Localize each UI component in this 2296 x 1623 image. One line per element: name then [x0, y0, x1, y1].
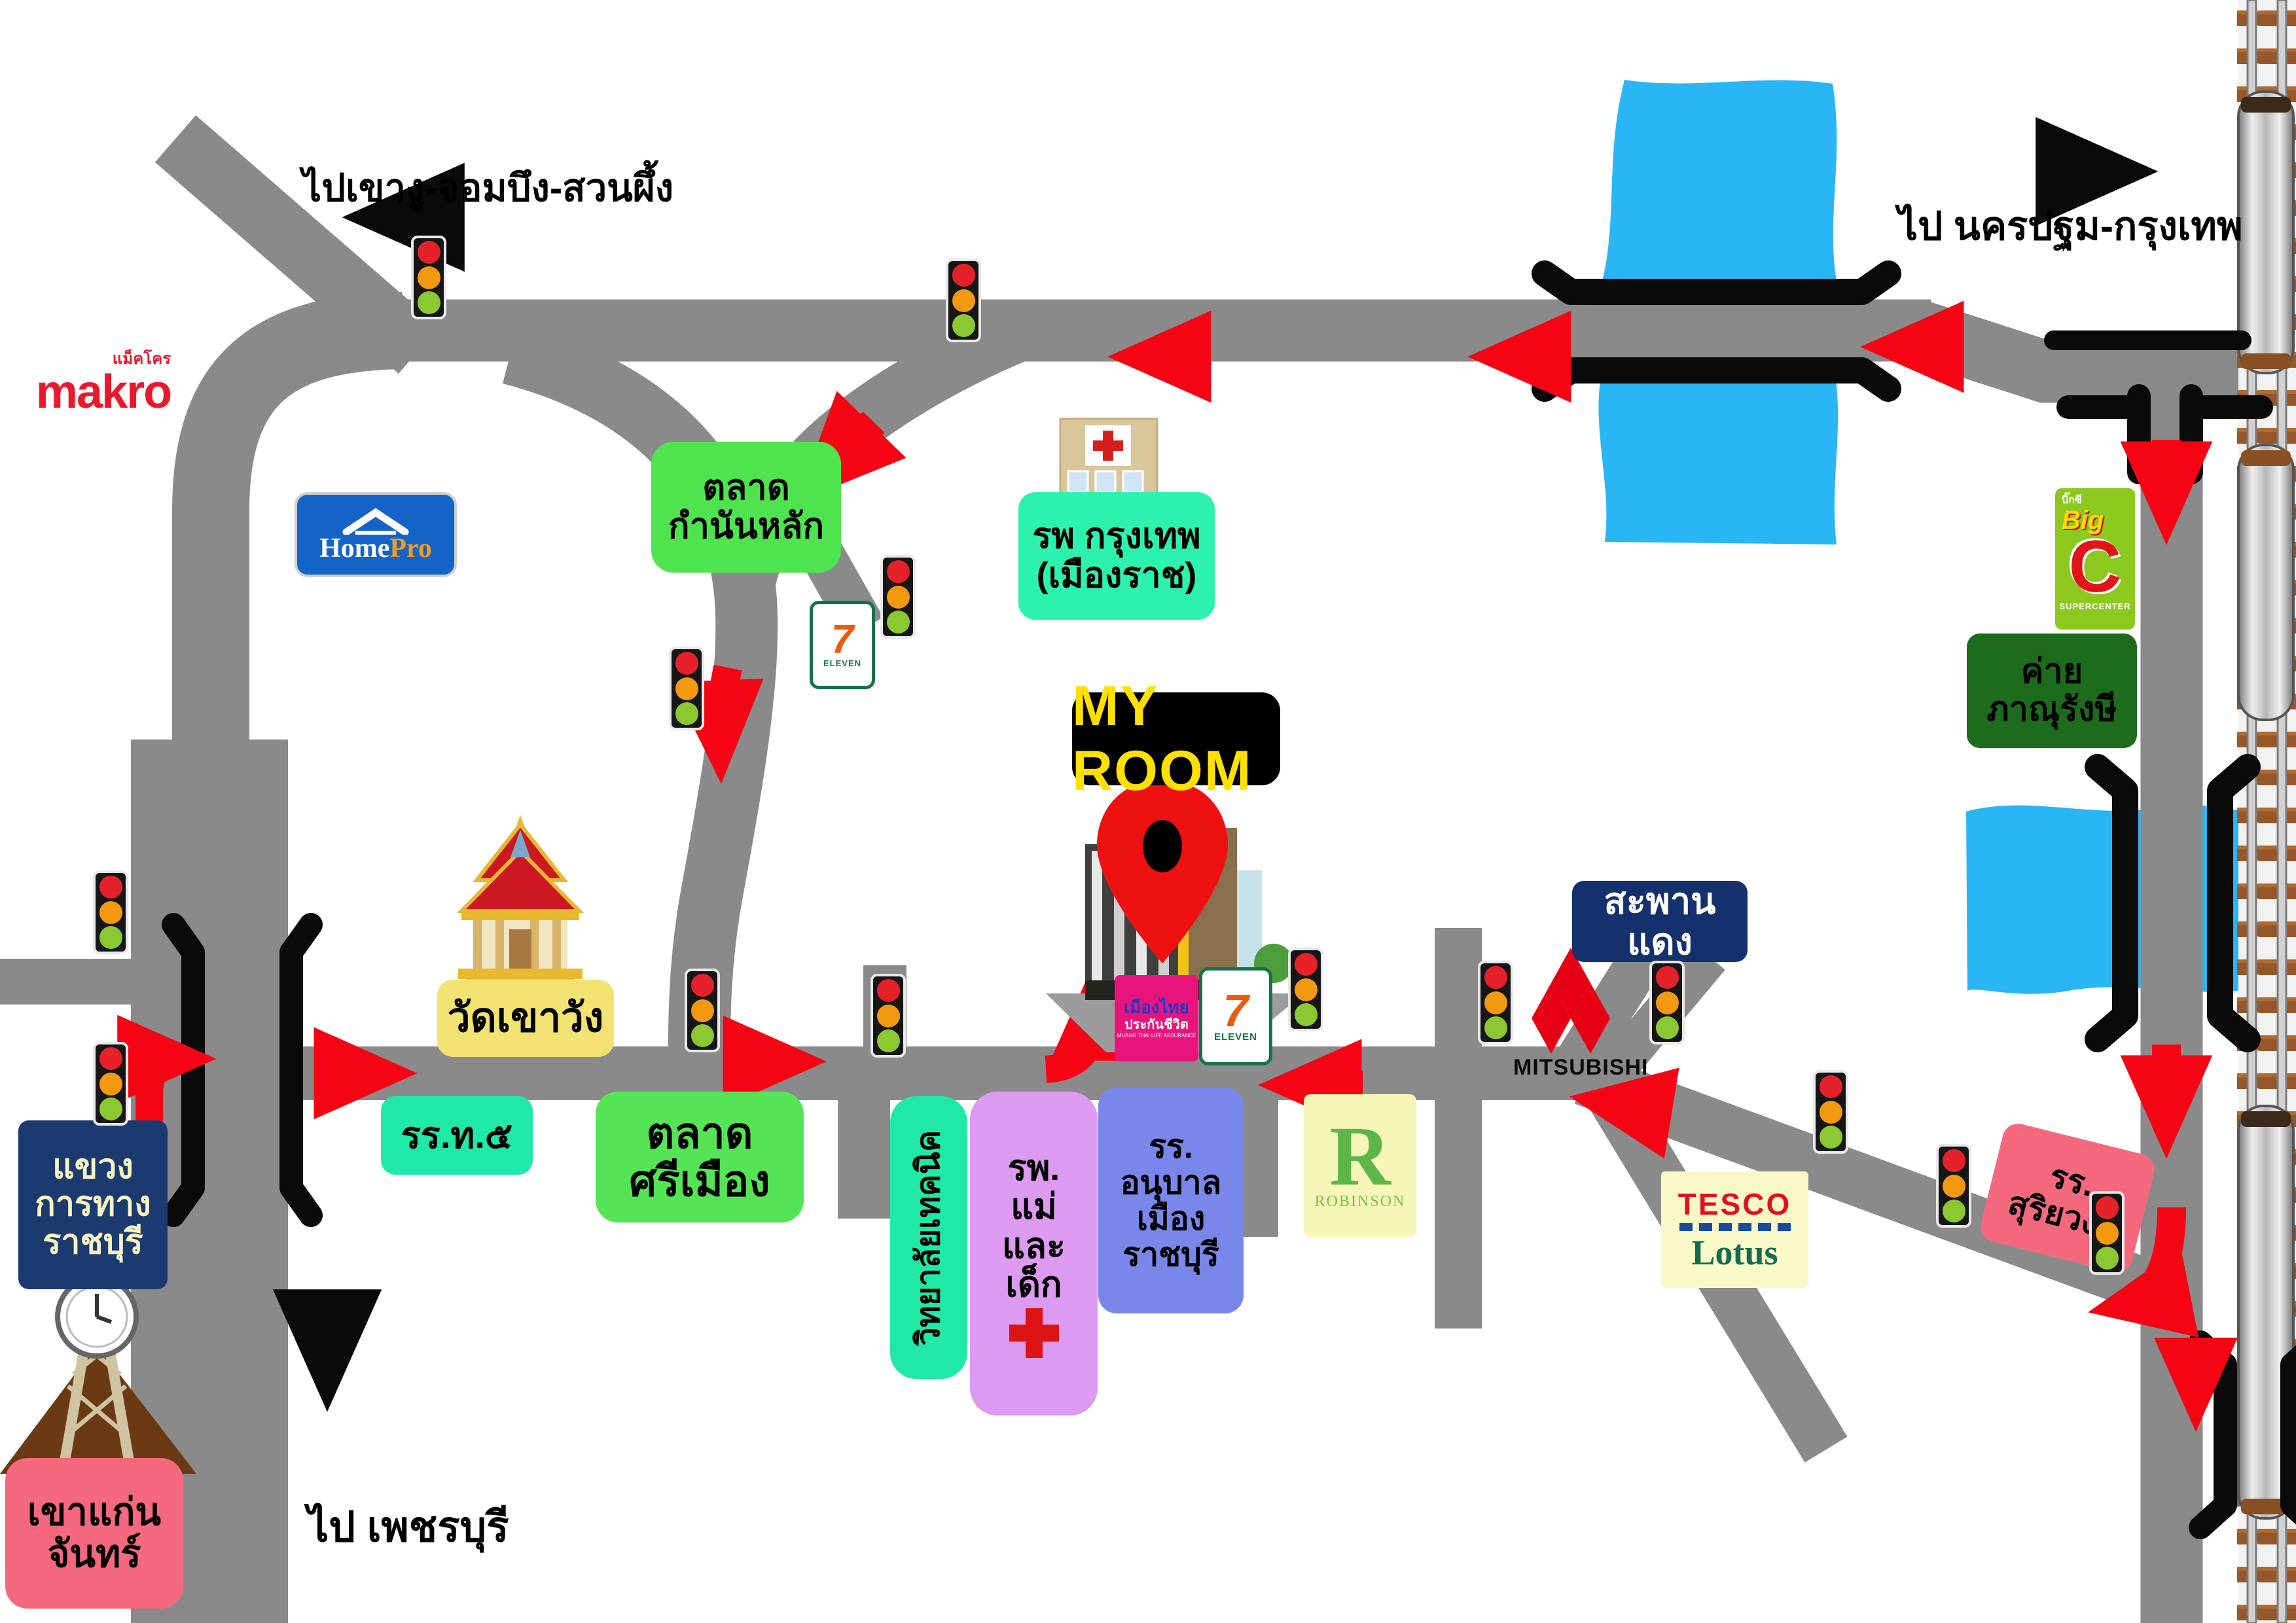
- tesco-dashes: [1679, 1223, 1791, 1231]
- label-phanurangsi-camp: ค่าย ภาณุรังษี: [1967, 633, 2137, 748]
- label-talat-si-mueang: ตลาด ศรีเมือง: [596, 1092, 804, 1222]
- label-line: รพ กรุงเทพ: [1032, 517, 1200, 556]
- label-khao-kaen-chan: เขาแก่น จันทร์: [5, 1458, 183, 1609]
- label-line: ตลาด: [646, 1109, 753, 1157]
- label-line: เขาแก่น: [27, 1491, 161, 1533]
- label-line: แขวง: [52, 1149, 134, 1186]
- label-saphan-daeng: สะพานแดง: [1572, 881, 1748, 962]
- lotus-text: Lotus: [1691, 1235, 1778, 1270]
- traffic-light-icon: [411, 236, 446, 319]
- robinson-text: ROBINSON: [1315, 1193, 1406, 1211]
- seven-eleven-logo: 7 ELEVEN: [1199, 967, 1272, 1065]
- note-to-phetchaburi: ไป เพชรบุรี: [308, 1493, 509, 1560]
- label-line: สะพานแดง: [1572, 881, 1748, 961]
- label-line: ราชบุรี: [43, 1224, 143, 1261]
- label-anuban-school: รร. อนุบาล เมือง ราชบุรี: [1098, 1088, 1244, 1313]
- label-line: ศรีเมือง: [629, 1157, 770, 1205]
- label-line: เด็ก: [1005, 1266, 1062, 1304]
- label-line: การทาง: [35, 1186, 151, 1223]
- note-to-khao-ngu: ไปเขางู-จอมบึง-สวนผึ้ง: [302, 157, 673, 218]
- label-line: (เมืองราช): [1037, 556, 1197, 595]
- label-line: เมือง: [1137, 1201, 1206, 1237]
- traffic-light-icon: [1478, 961, 1513, 1044]
- muang-thai-line3: MUANG THAI LIFE ASSURANCE: [1117, 1033, 1196, 1039]
- hospital-icon: [1060, 419, 1157, 496]
- tesco-lotus-logo: TESCO Lotus: [1661, 1171, 1808, 1288]
- seven-eleven-7: 7: [1223, 990, 1249, 1031]
- label-wat-khao-wang: วัดเขาวัง: [437, 980, 614, 1057]
- homepro-home-text: Home: [319, 533, 389, 563]
- big-c-supercenter-text: SUPERCENTER: [2059, 601, 2130, 611]
- label-school-t5: รร.ท.๕: [381, 1096, 533, 1175]
- note-to-bangkok: ไป นครปฐม-กรุงเทพ: [1898, 195, 2243, 257]
- traffic-light-icon: [685, 969, 720, 1052]
- traffic-light-icon: [669, 647, 704, 730]
- traffic-light-icon: [1936, 1144, 1971, 1228]
- seven-eleven-text: ELEVEN: [1214, 1031, 1257, 1043]
- label-line: รพ.: [1008, 1149, 1060, 1188]
- muang-thai-line1: เมืองไทย: [1124, 998, 1189, 1018]
- label-line: อนุบาล: [1121, 1165, 1222, 1201]
- red-cross-icon: [1009, 1308, 1059, 1358]
- robinson-r-letter: R: [1329, 1120, 1391, 1193]
- makro-wordmark: makro: [36, 371, 171, 414]
- roof-icon: [340, 507, 412, 535]
- seven-eleven-logo: 7 ELEVEN: [810, 601, 875, 689]
- homepro-pro-text: Pro: [389, 533, 432, 563]
- label-line: วิทยาลัยเทคนิค: [911, 1130, 947, 1345]
- muang-thai-line2: ประกันชีวิต: [1124, 1018, 1189, 1033]
- traffic-light-icon: [946, 259, 981, 342]
- mitsubishi-text: MITSUBISHI: [1513, 1055, 1648, 1080]
- muang-thai-insurance-sign: เมืองไทย ประกันชีวิต MUANG THAI LIFE ASS…: [1115, 975, 1198, 1061]
- big-c-logo: บิ๊กซี Big C SUPERCENTER: [2055, 488, 2135, 630]
- route-map-to-my-room: ไปเขางู-จอมบึง-สวนผึ้ง ไป นครปฐม-กรุงเทพ…: [0, 0, 2296, 1623]
- big-c-c-letter: C: [2069, 532, 2122, 601]
- my-room-sign: MY ROOM: [1072, 692, 1280, 785]
- label-line: กำนันหลัก: [668, 507, 824, 546]
- robinson-logo: R ROBINSON: [1304, 1094, 1416, 1237]
- label-line: รร.ท.๕: [401, 1115, 513, 1156]
- homepro-logo: HomePro: [295, 492, 457, 577]
- label-talat-kamnan-lak: ตลาด กำนันหลัก: [651, 442, 841, 573]
- seven-eleven-text: ELEVEN: [823, 658, 861, 668]
- label-line: ตลาด: [702, 469, 790, 507]
- traffic-light-icon: [870, 974, 906, 1058]
- label-line: จันทร์: [47, 1533, 141, 1575]
- arrow-curve-south: [720, 668, 728, 749]
- traffic-light-icon: [93, 1042, 128, 1126]
- arrow-lower-west-2: [1604, 1102, 1668, 1113]
- label-line: วัดเขาวัง: [448, 996, 604, 1041]
- traffic-light-icon: [1649, 961, 1685, 1044]
- label-technical-college: วิทยาลัยเทคนิค: [890, 1096, 967, 1379]
- label-line: และ: [1002, 1227, 1066, 1266]
- temple-icon: [458, 815, 583, 988]
- label-line: ค่าย: [2021, 653, 2083, 690]
- seven-eleven-7: 7: [831, 622, 853, 658]
- label-highway-district: แขวง การทาง ราชบุรี: [18, 1120, 168, 1289]
- label-line: แม่: [1011, 1188, 1056, 1226]
- makro-logo: แม็คโคร makro: [36, 346, 171, 414]
- traffic-light-icon: [1288, 948, 1323, 1031]
- label-bangkok-hospital: รพ กรุงเทพ (เมืองราช): [1018, 492, 1215, 620]
- traffic-light-icon: [2089, 1191, 2125, 1275]
- label-mother-child-hospital: รพ. แม่ และ เด็ก: [970, 1092, 1098, 1416]
- traffic-light-icon: [880, 555, 916, 639]
- traffic-light-icon: [93, 870, 128, 954]
- label-line: ราชบุรี: [1122, 1237, 1219, 1273]
- label-line: รร.: [1149, 1129, 1193, 1165]
- traffic-light-icon: [1813, 1070, 1848, 1154]
- label-line: ภาณุรังษี: [1986, 691, 2117, 728]
- tesco-text: TESCO: [1678, 1189, 1791, 1219]
